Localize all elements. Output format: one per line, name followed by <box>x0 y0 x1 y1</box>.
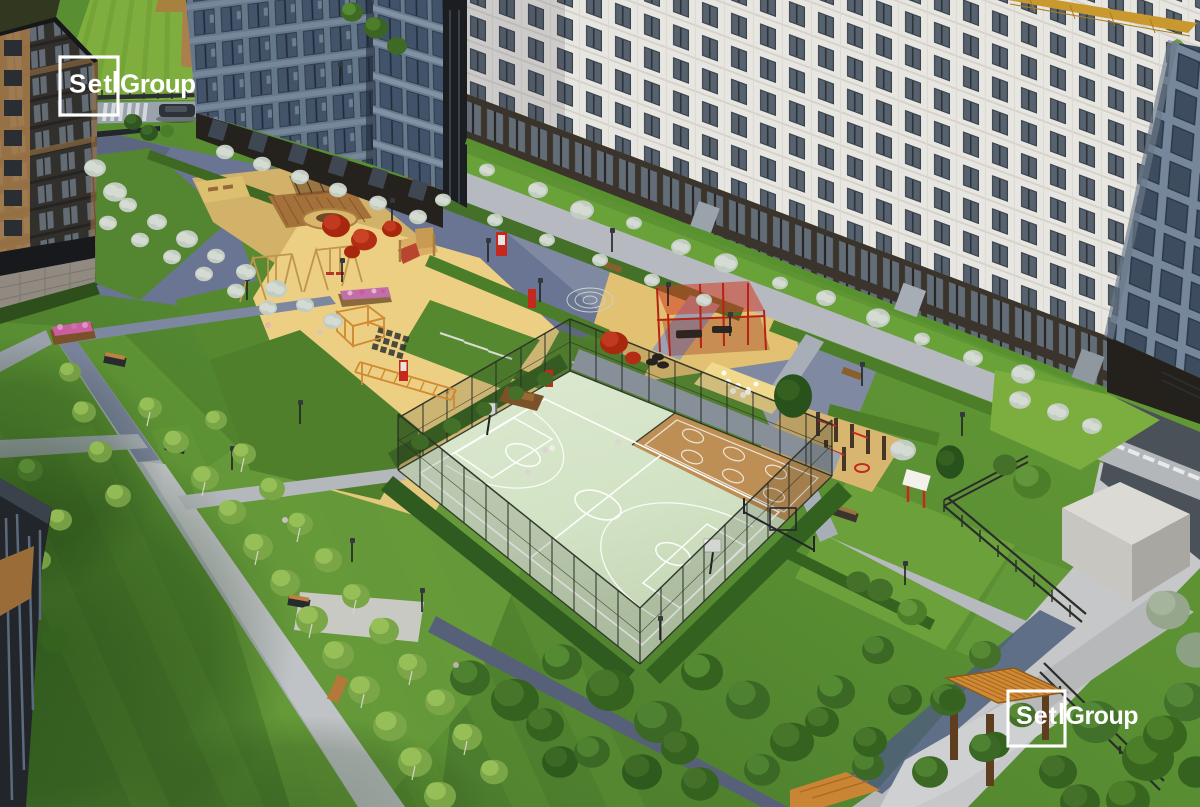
svg-text:Group: Group <box>1066 702 1139 730</box>
svg-text:Set: Set <box>69 69 112 99</box>
svg-text:Set: Set <box>1016 702 1058 730</box>
svg-text:Group: Group <box>120 69 196 99</box>
